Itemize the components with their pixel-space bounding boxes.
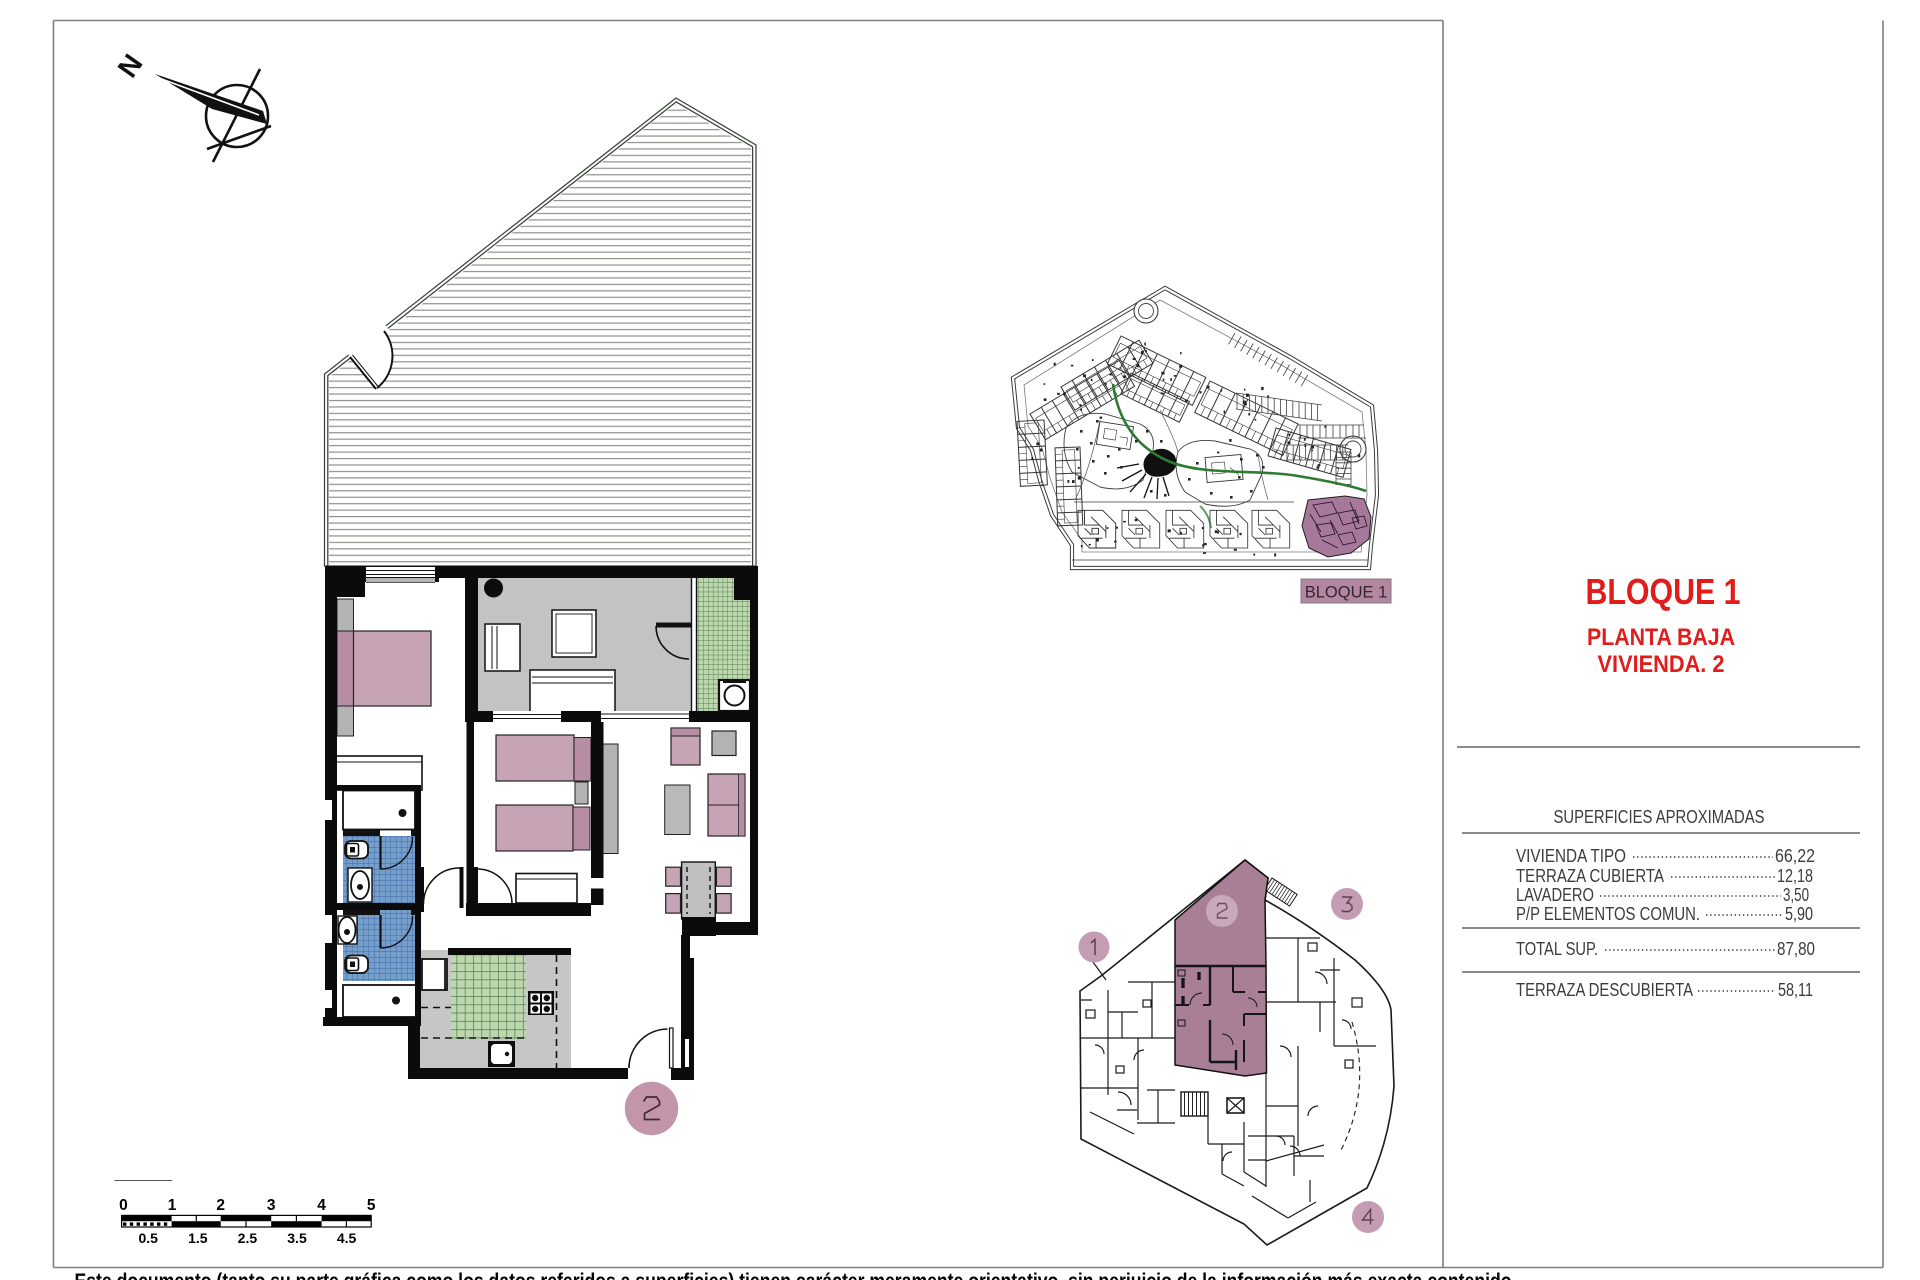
svg-text:0: 0 bbox=[119, 1197, 128, 1214]
svg-text:2.5: 2.5 bbox=[238, 1230, 258, 1246]
svg-text:5,90: 5,90 bbox=[1785, 904, 1813, 924]
svg-text:2: 2 bbox=[216, 1197, 225, 1214]
svg-text:1.5: 1.5 bbox=[188, 1230, 208, 1246]
svg-text:58,11: 58,11 bbox=[1778, 980, 1813, 1000]
svg-text:SUPERFICIES APROXIMADAS: SUPERFICIES APROXIMADAS bbox=[1554, 807, 1765, 827]
svg-text:0.5: 0.5 bbox=[138, 1230, 158, 1246]
svg-text:PLANTA BAJA: PLANTA BAJA bbox=[1587, 624, 1735, 651]
svg-text:12,18: 12,18 bbox=[1777, 866, 1813, 886]
svg-text:5: 5 bbox=[367, 1197, 376, 1214]
svg-text:BLOQUE 1: BLOQUE 1 bbox=[1586, 571, 1741, 612]
svg-text:VIVIENDA. 2: VIVIENDA. 2 bbox=[1598, 651, 1725, 678]
svg-text:TERRAZA CUBIERTA: TERRAZA CUBIERTA bbox=[1516, 866, 1664, 886]
svg-text:4.5: 4.5 bbox=[337, 1230, 357, 1246]
svg-text:66,22: 66,22 bbox=[1775, 846, 1815, 866]
svg-text:TERRAZA DESCUBIERTA: TERRAZA DESCUBIERTA bbox=[1516, 980, 1693, 1000]
svg-text:87,80: 87,80 bbox=[1777, 939, 1815, 959]
svg-text:1: 1 bbox=[168, 1197, 177, 1214]
svg-text:BLOQUE 1: BLOQUE 1 bbox=[1305, 584, 1388, 602]
svg-text:P/P ELEMENTOS COMUN.: P/P ELEMENTOS COMUN. bbox=[1516, 904, 1700, 924]
svg-text:3.5: 3.5 bbox=[287, 1230, 307, 1246]
svg-text:4: 4 bbox=[317, 1197, 326, 1214]
svg-text:Este documento (tanto su parte: Este documento (tanto su parte gráfica c… bbox=[75, 1270, 1512, 1280]
svg-text:LAVADERO: LAVADERO bbox=[1516, 885, 1594, 905]
svg-text:VIVIENDA TIPO: VIVIENDA TIPO bbox=[1516, 846, 1626, 866]
svg-text:3: 3 bbox=[267, 1197, 276, 1214]
svg-text:3,50: 3,50 bbox=[1783, 885, 1809, 905]
svg-text:TOTAL SUP.: TOTAL SUP. bbox=[1516, 939, 1598, 959]
